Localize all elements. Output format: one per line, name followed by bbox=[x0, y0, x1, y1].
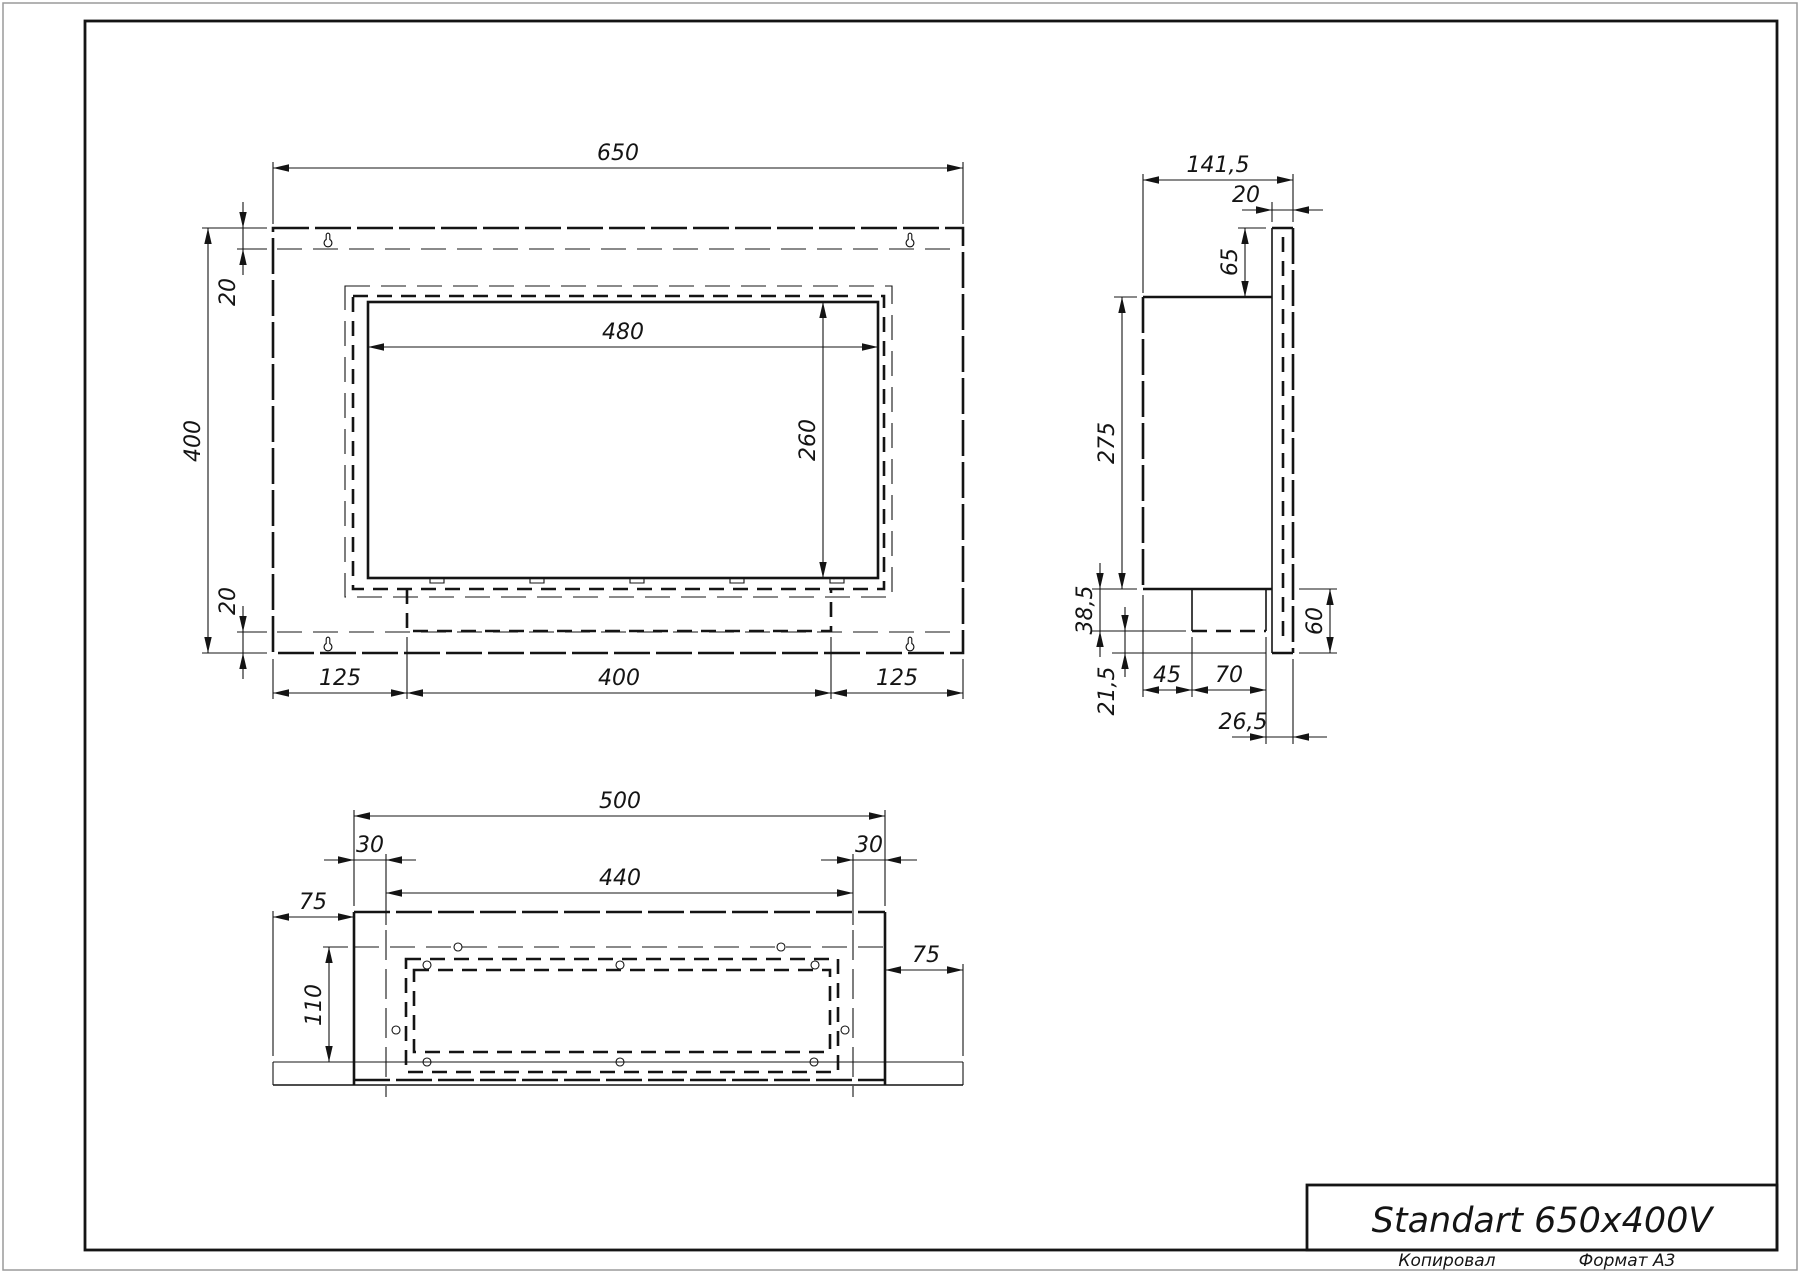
dim-label: 70 bbox=[1215, 663, 1243, 688]
dim-bottom-chain: 125 400 125 bbox=[273, 637, 963, 699]
dim-label: 65 bbox=[1218, 248, 1243, 276]
keyhole-slot-icon bbox=[324, 233, 332, 247]
drawing-sheet: 650 400 20 20 480 bbox=[0, 0, 1800, 1273]
bottom-screw-holes bbox=[392, 943, 849, 1066]
screw-hole bbox=[811, 961, 819, 969]
drawing-title: Standart 650x400V bbox=[1372, 1201, 1715, 1241]
screw-hole bbox=[454, 943, 462, 951]
dim-label: 400 bbox=[598, 666, 640, 691]
dim-opening-width: 480 bbox=[368, 320, 878, 347]
dim-top-inset: 20 bbox=[216, 202, 267, 306]
dim-label: 275 bbox=[1095, 422, 1120, 464]
dim-opening-height: 260 bbox=[796, 302, 823, 578]
dim-label: 75 bbox=[912, 943, 940, 968]
dim-top-offset: 65 bbox=[1218, 228, 1266, 297]
dim-label: 440 bbox=[599, 866, 641, 891]
screw-hole bbox=[392, 1026, 400, 1034]
dim-tray-depth: 38,5 bbox=[1073, 563, 1186, 657]
dim-label: 125 bbox=[876, 666, 918, 691]
dim-label: 500 bbox=[599, 789, 641, 814]
dim-label: 30 bbox=[356, 833, 384, 858]
screw-hole bbox=[841, 1026, 849, 1034]
dim-inner-width: 440 bbox=[386, 866, 853, 893]
dim-label: 260 bbox=[796, 419, 821, 461]
keyhole-slot-icon bbox=[906, 233, 914, 247]
dim-label: 20 bbox=[1232, 183, 1260, 208]
dim-label: 45 bbox=[1153, 663, 1181, 688]
footer-copied-label: Копировал bbox=[1398, 1251, 1495, 1271]
sheet-inner-frame bbox=[85, 21, 1777, 1250]
dim-front-flange: 20 bbox=[1232, 183, 1323, 222]
footer-format-label: Формат А3 bbox=[1579, 1251, 1676, 1271]
dim-box-depth: 110 bbox=[302, 947, 348, 1062]
dim-tray-offset: 45 bbox=[1143, 595, 1192, 697]
dim-left-margin: 75 bbox=[273, 890, 354, 1056]
dim-box-height: 275 bbox=[1092, 297, 1137, 589]
dim-right-margin: 75 bbox=[885, 943, 963, 1056]
front-tray-hidden bbox=[407, 589, 831, 631]
side-view: 141,5 20 65 275 38,5 bbox=[1073, 153, 1337, 744]
bottom-burner-hidden-inner bbox=[414, 970, 830, 1052]
dim-bottom-offset: 60 bbox=[1299, 589, 1337, 653]
front-view: 650 400 20 20 480 bbox=[181, 141, 963, 699]
bottom-burner-hidden-outer bbox=[406, 959, 838, 1072]
dim-label: 38,5 bbox=[1073, 586, 1098, 635]
dim-overall-width: 650 bbox=[273, 141, 963, 224]
keyhole-slot-icon bbox=[906, 637, 914, 651]
dim-label: 125 bbox=[319, 666, 361, 691]
dim-label: 480 bbox=[602, 320, 644, 345]
dim-label: 20 bbox=[216, 278, 241, 306]
screw-hole bbox=[423, 961, 431, 969]
dim-label: 400 bbox=[181, 420, 206, 462]
dim-label: 110 bbox=[302, 984, 327, 1026]
dim-label: 141,5 bbox=[1187, 153, 1250, 178]
dim-label: 26,5 bbox=[1219, 710, 1268, 735]
keyhole-slot-icon bbox=[324, 637, 332, 651]
screw-hole bbox=[616, 961, 624, 969]
screw-hole bbox=[777, 943, 785, 951]
bottom-view: 500 30 30 440 75 bbox=[273, 789, 963, 1097]
dim-label: 60 bbox=[1303, 607, 1328, 635]
dim-label: 30 bbox=[855, 833, 883, 858]
drawing-canvas: 650 400 20 20 480 bbox=[0, 0, 1800, 1273]
sheet-footer: Копировал Формат А3 bbox=[1398, 1251, 1675, 1271]
dim-bottom-lip: 21,5 bbox=[1095, 607, 1266, 715]
title-block: Standart 650x400V bbox=[1307, 1185, 1777, 1250]
dim-bottom-inset: 20 bbox=[216, 587, 267, 679]
dim-label: 650 bbox=[597, 141, 639, 166]
dim-label: 20 bbox=[216, 587, 241, 615]
dim-label: 21,5 bbox=[1095, 667, 1120, 716]
dim-label: 75 bbox=[299, 890, 327, 915]
